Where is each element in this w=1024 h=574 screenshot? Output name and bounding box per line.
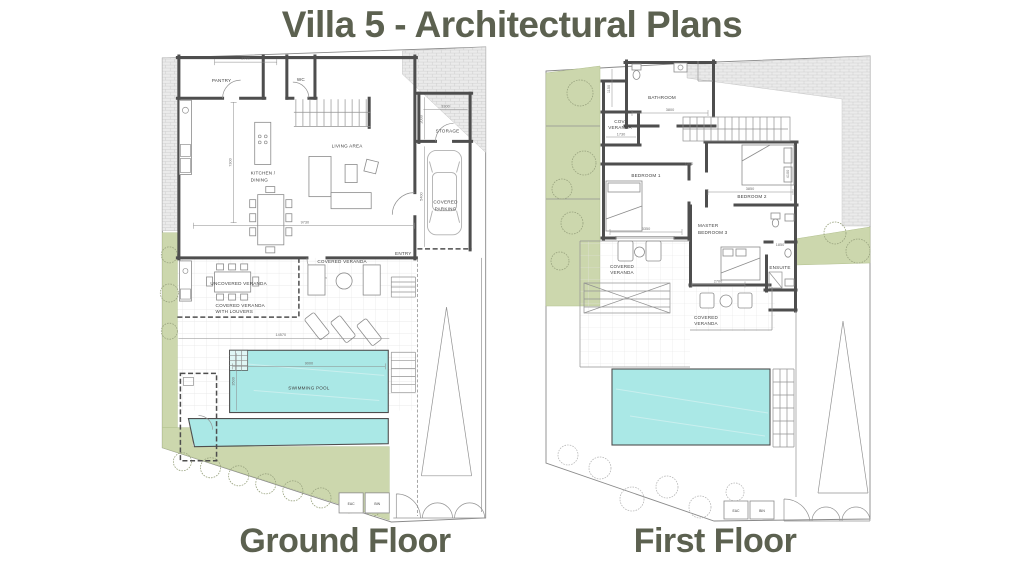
covered-veranda-label: COVERED VERANDA: [317, 259, 367, 264]
kitchen-label2: DINING: [251, 178, 269, 183]
bedroom2-label: BEDROOM 2: [737, 194, 767, 199]
ground-floor-plan: EAC BIN PANTRY WC STORAGE LIVING AREA KI…: [158, 44, 490, 524]
swimming-pool-label: SWIMMING POOL: [288, 385, 330, 390]
bedroom1-label: BEDROOM 1: [631, 173, 661, 178]
wc-fixtures: [771, 213, 794, 227]
veranda-bottom-label2: VERANDA: [694, 321, 718, 326]
svg-text:1200: 1200: [685, 162, 693, 166]
eac-label: EAC: [733, 509, 741, 513]
svg-text:3350: 3350: [642, 227, 650, 231]
tree-icon: [173, 453, 191, 471]
parking-label: COVERED: [433, 200, 458, 205]
master-label: MASTER: [698, 223, 719, 228]
veranda-left-label2: VERANDA: [610, 270, 634, 275]
parking-label2: PARKING: [435, 207, 457, 212]
driveway: [784, 311, 870, 521]
louvered-veranda-label: COVERED VERANDA: [216, 303, 266, 308]
svg-text:2700: 2700: [241, 57, 249, 61]
living-furniture: [309, 156, 379, 208]
page-title: Villa 5 - Architectural Plans: [0, 4, 1024, 46]
svg-text:9000: 9000: [305, 361, 313, 365]
master-label2: BEDROOM 3: [698, 230, 728, 235]
svg-text:1730: 1730: [617, 133, 625, 137]
bin-label: BIN: [759, 509, 765, 513]
tree-icon: [620, 487, 644, 511]
veranda-bottom-label: COVERED: [694, 315, 719, 320]
eac-bin-boxes: EAC BIN: [724, 501, 774, 519]
svg-text:4100: 4100: [786, 170, 790, 178]
pool-side-steps: [773, 369, 794, 447]
bin-label: BIN: [374, 502, 380, 506]
svg-text:3500: 3500: [232, 377, 236, 385]
svg-text:2000: 2000: [419, 115, 423, 123]
storage-label: STORAGE: [436, 128, 460, 133]
bathroom-label: BATHROOM: [648, 95, 676, 100]
svg-text:7300: 7300: [229, 158, 233, 166]
kitchen-island: [255, 122, 271, 164]
uncovered-veranda-label: UNCOVERED VERANDA: [210, 281, 267, 286]
eac-label: EAC: [348, 502, 356, 506]
louvered-veranda-label2: WITH LOUVERS: [216, 309, 254, 314]
bottom-trees: [558, 445, 744, 518]
ground-floor-caption: Ground Floor: [180, 522, 510, 561]
svg-text:3850: 3850: [746, 187, 754, 191]
svg-text:1850: 1850: [776, 243, 784, 247]
window-line: [615, 237, 675, 239]
tree-icon: [589, 457, 611, 479]
bottom-veranda-furniture: [700, 293, 752, 308]
svg-text:5400: 5400: [419, 192, 423, 200]
tree-icon: [558, 445, 578, 465]
car-top-view: [427, 150, 461, 234]
ensuite-label: ENSUITE: [769, 265, 790, 270]
first-floor-caption: First Floor: [550, 522, 880, 561]
entry-label: ENTRY: [395, 251, 412, 256]
first-floor-plan: EAC BIN BATHROOM COV. VERANDA BEDROOM 1 …: [540, 50, 880, 524]
cov-veranda-label2: VERANDA: [608, 125, 632, 130]
svg-text:3800: 3800: [666, 108, 674, 112]
svg-text:2700: 2700: [714, 280, 722, 284]
svg-text:3300: 3300: [441, 104, 449, 108]
kitchen-fixtures: [179, 100, 270, 174]
wc-label: WC: [297, 77, 306, 82]
tree-icon: [689, 496, 711, 518]
living-area-label: LIVING AREA: [332, 143, 364, 148]
swimming-pool: [612, 369, 770, 445]
pantry-label: PANTRY: [212, 78, 231, 83]
svg-text:9730: 9730: [301, 221, 309, 225]
tree-icon: [656, 476, 678, 498]
cov-veranda-label: COV.: [614, 119, 626, 124]
svg-text:14570: 14570: [276, 333, 287, 337]
outdoor-kitchen: [179, 261, 191, 301]
veranda-left-label: COVERED: [610, 264, 635, 269]
kitchen-label: KITCHEN /: [251, 171, 276, 176]
stairs: [294, 99, 370, 126]
dining-set: [250, 187, 292, 253]
tree-icon: [726, 483, 744, 501]
stairs: [683, 117, 790, 141]
svg-text:1150: 1150: [607, 85, 611, 93]
